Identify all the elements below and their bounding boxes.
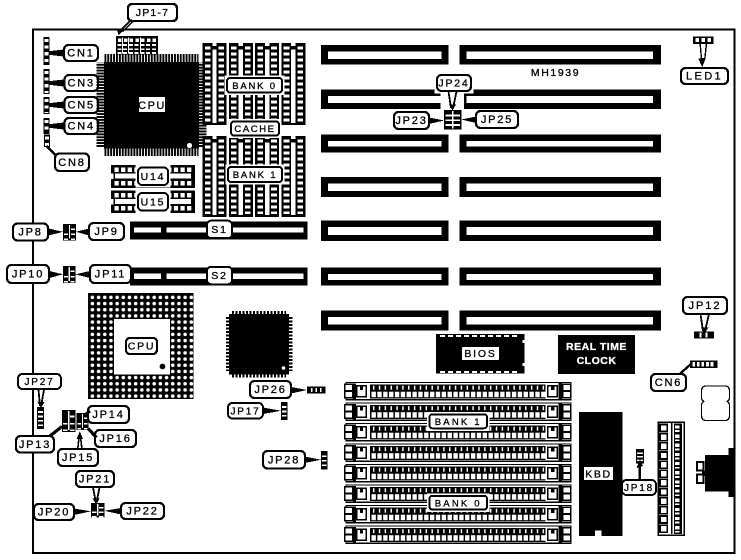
svg-text:CPU: CPU <box>138 100 166 112</box>
svg-text:BIOS: BIOS <box>464 348 496 360</box>
svg-text:BANK 1: BANK 1 <box>233 170 278 181</box>
svg-text:JP14: JP14 <box>92 409 124 421</box>
svg-text:BANK 0: BANK 0 <box>435 498 482 509</box>
svg-text:JP17: JP17 <box>231 406 261 417</box>
svg-text:U15: U15 <box>141 196 166 208</box>
svg-text:JP10: JP10 <box>12 269 44 281</box>
svg-text:CN1: CN1 <box>67 48 94 60</box>
svg-text:CACHE: CACHE <box>234 124 275 135</box>
svg-text:JP21: JP21 <box>79 474 111 486</box>
svg-text:JP1-7: JP1-7 <box>136 7 169 19</box>
svg-text:JP25: JP25 <box>481 114 513 126</box>
svg-text:CN8: CN8 <box>58 157 85 169</box>
svg-text:CPU: CPU <box>128 341 156 353</box>
svg-text:JP24: JP24 <box>438 78 469 90</box>
svg-text:CLOCK: CLOCK <box>577 355 617 367</box>
svg-text:JP13: JP13 <box>19 439 51 451</box>
svg-text:CN3: CN3 <box>68 78 95 90</box>
svg-text:U14: U14 <box>141 171 166 183</box>
svg-text:S1: S1 <box>211 224 227 236</box>
svg-text:S2: S2 <box>211 270 227 282</box>
svg-text:JP23: JP23 <box>395 115 427 127</box>
svg-text:JP8: JP8 <box>18 227 42 239</box>
svg-text:JP26: JP26 <box>254 384 286 396</box>
svg-text:JP20: JP20 <box>38 507 70 519</box>
svg-text:JP16: JP16 <box>99 433 131 445</box>
svg-text:KBD: KBD <box>585 469 611 481</box>
svg-text:JP9: JP9 <box>94 226 118 238</box>
svg-text:JP11: JP11 <box>95 269 126 281</box>
svg-text:CN5: CN5 <box>68 100 95 112</box>
svg-text:MH1939: MH1939 <box>531 67 580 79</box>
svg-text:JP27: JP27 <box>25 377 55 388</box>
svg-text:BANK 0: BANK 0 <box>232 81 277 92</box>
svg-text:REAL TIME: REAL TIME <box>566 341 627 353</box>
svg-text:LED1: LED1 <box>686 71 723 83</box>
svg-text:JP12: JP12 <box>688 300 721 312</box>
svg-text:JP28: JP28 <box>268 454 300 466</box>
svg-text:JP22: JP22 <box>126 506 158 518</box>
svg-text:CN4: CN4 <box>68 121 95 133</box>
svg-text:CN6: CN6 <box>655 377 682 389</box>
svg-text:BANK 1: BANK 1 <box>435 417 482 428</box>
svg-text:JP18: JP18 <box>624 483 654 494</box>
svg-text:JP15: JP15 <box>62 452 94 464</box>
